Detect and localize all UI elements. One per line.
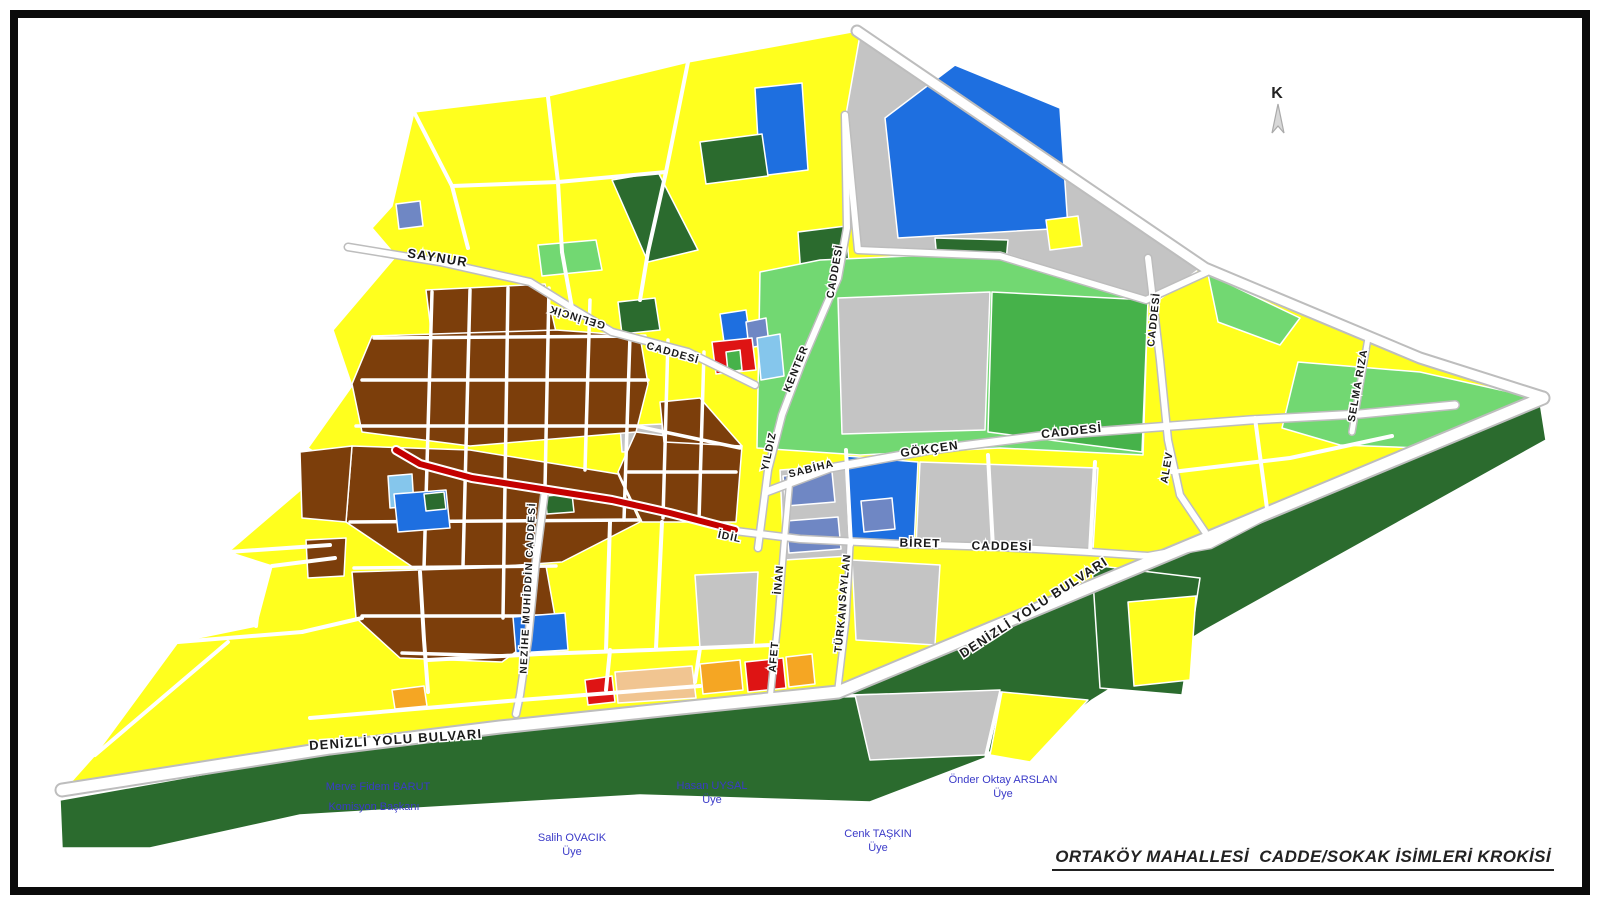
city-sketch-map: SAYNUR GELİNCİK CADDESİ YILDIZ KENTER CA… bbox=[0, 0, 1600, 905]
north-arrow-icon bbox=[1272, 104, 1284, 133]
north-label: K bbox=[1271, 85, 1283, 102]
light-green-parcel bbox=[538, 240, 602, 276]
gray-parcel bbox=[855, 690, 1000, 760]
committee-name: Hasan UYSAL bbox=[677, 780, 748, 792]
committee-name: Cenk TAŞKIN bbox=[844, 828, 912, 840]
committee-name: Salih OVACIK bbox=[538, 832, 607, 844]
yellow-parcel bbox=[990, 692, 1088, 762]
small-yellow-parcel-ne bbox=[1046, 216, 1082, 250]
committee-name: Önder Oktay ARSLAN bbox=[949, 774, 1058, 786]
yellow-parcel bbox=[1128, 596, 1196, 686]
gray-parcel bbox=[916, 462, 1098, 550]
land-parcels bbox=[60, 31, 1546, 848]
street-label-biret: BİRET bbox=[899, 535, 940, 551]
committee-role: Üye bbox=[993, 788, 1013, 800]
committee-role: Üye bbox=[868, 842, 888, 854]
dark-green-parcel bbox=[700, 134, 768, 184]
gray-parcel bbox=[852, 560, 940, 645]
north-indicator: K bbox=[1271, 85, 1284, 133]
map-title: ORTAKÖY MAHALLESİ CADDE/SOKAK İSİMLERİ K… bbox=[1052, 847, 1554, 871]
street-label-inan: İNAN bbox=[771, 564, 787, 595]
street-label-biret-caddesi: CADDESİ bbox=[971, 537, 1032, 553]
committee-role: Üye bbox=[702, 794, 722, 806]
gray-parcel bbox=[695, 572, 758, 648]
committee-name: Merve Fidem BARUT bbox=[326, 781, 431, 793]
gray-patch-in-band bbox=[838, 292, 990, 434]
dark-green-parcel bbox=[618, 298, 660, 334]
committee-role: Üye bbox=[562, 846, 582, 858]
committee-role: Komisyon Başkanı bbox=[328, 801, 419, 813]
